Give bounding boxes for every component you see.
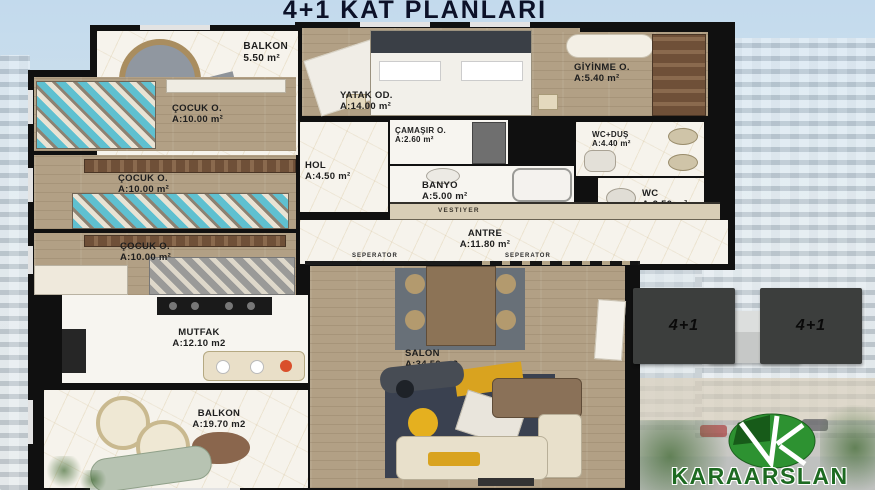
room-name: WC (642, 188, 687, 199)
room-area: A:10.00 m² (118, 184, 169, 195)
room-name: BALKON (164, 408, 274, 419)
window (470, 22, 530, 27)
plate (216, 360, 230, 374)
room-area: A:5.40 m² (574, 73, 630, 84)
room-giyinme: GİYİNME O. A:5.40 m² (562, 32, 708, 116)
seperator-rule-dashed (470, 261, 638, 265)
nightstand (538, 94, 558, 110)
wardrobe (652, 34, 706, 116)
room-name: ANTRE (440, 228, 530, 239)
burner (191, 302, 199, 310)
brown-sofa (492, 378, 582, 418)
keyplan-left-label: 4+1 (669, 317, 699, 335)
room-name: HOL (305, 160, 350, 171)
room-name: BALKON (243, 41, 288, 53)
logo-wordmark: KARAARSLAN (645, 463, 875, 490)
dining-chair (405, 274, 425, 294)
console-table (594, 299, 626, 361)
plant (46, 456, 82, 488)
toilet (584, 150, 616, 172)
room-hol: HOL A:4.50 m² (300, 122, 388, 212)
room-name: YATAK OD. (340, 90, 393, 101)
room-area: A:10.00 m² (120, 252, 171, 263)
room-name: MUTFAK (154, 327, 244, 338)
pillow (461, 61, 523, 81)
kitchen-counter (62, 329, 86, 373)
room-name: ÇOCUK O. (118, 173, 169, 184)
window (28, 246, 33, 274)
room-cocuk-1: ÇOCUK O. A:10.00 m² (34, 77, 296, 151)
window (360, 22, 430, 27)
bathtub (512, 168, 572, 202)
background-buildings-left (0, 55, 30, 490)
keyplan: 4+1 4+1 (630, 283, 865, 368)
plant (78, 470, 108, 490)
room-balkon-bottom: BALKON A:19.70 m2 (44, 390, 308, 488)
room-area: A:19.70 m2 (164, 419, 274, 430)
room-antre: ANTRE A:11.80 m² SEPERATOR SEPERATOR (300, 220, 728, 264)
room-area: 5.50 m² (243, 53, 288, 65)
tv-bench (478, 478, 534, 486)
room-area: A:4.50 m² (305, 171, 350, 182)
wardrobe (84, 235, 286, 247)
dining-chair (405, 310, 425, 330)
dining-table (426, 266, 496, 346)
bed-blanket (371, 31, 531, 53)
burner (169, 302, 177, 310)
dining-chair (496, 274, 516, 294)
vestiyer-label: VESTIYER (438, 207, 480, 214)
stove-counter (157, 297, 272, 315)
room-name: ÇAMAŞIR O. (395, 126, 446, 135)
sink (668, 154, 698, 171)
dining-island (203, 351, 305, 381)
karaarslan-logo-icon (726, 412, 818, 470)
room-mutfak: MUTFAK A:12.10 m2 (62, 295, 308, 383)
washer-dryer (472, 122, 506, 164)
room-area: A:5.00 m² (422, 191, 467, 202)
wardrobe (84, 159, 296, 173)
seperator-label-right: SEPERATOR (505, 253, 551, 259)
plate (250, 360, 264, 374)
room-cocuk-2: ÇOCUK O. A:10.00 m² (34, 155, 296, 229)
room-name: SALON (405, 348, 458, 359)
room-name: ÇOCUK O. (172, 103, 223, 114)
keyplan-left-unit: 4+1 (633, 288, 735, 364)
yellow-cushion (428, 452, 480, 466)
room-name: WC+DUŞ (592, 130, 631, 139)
vestiyer-cabinet: VESTIYER (390, 202, 720, 220)
sink (668, 128, 698, 145)
room-name: ÇOCUK O. (120, 241, 171, 252)
keyplan-right-unit: 4+1 (760, 288, 862, 364)
window (28, 400, 33, 444)
room-area: A:11.80 m² (440, 239, 530, 250)
dining-chair (496, 310, 516, 330)
desk (34, 265, 128, 295)
window (28, 90, 33, 124)
room-wc-dus: WC+DUŞ A:4.40 m² (576, 122, 704, 176)
seperator-label-left: SEPERATOR (352, 253, 398, 259)
window (140, 25, 210, 30)
room-area: A:4.40 m² (592, 139, 631, 148)
vanity-desk (566, 34, 654, 58)
room-camasir: ÇAMAŞIR O. A:2.60 m² (390, 120, 508, 164)
room-area: A:12.10 m2 (154, 338, 244, 349)
keyplan-right-label: 4+1 (796, 317, 826, 335)
burner (247, 302, 255, 310)
bed (72, 193, 289, 229)
yellow-pouf (408, 408, 438, 438)
room-area: A:2.60 m² (395, 135, 446, 144)
burner (225, 302, 233, 310)
room-area: A:14.00 m² (340, 101, 393, 112)
pillow (379, 61, 441, 81)
room-name: BANYO (422, 180, 467, 191)
room-name: GİYİNME O. (574, 62, 630, 73)
window (28, 168, 33, 202)
double-bed (370, 30, 532, 116)
room-yatak-odasi: YATAK OD. A:14.00 m² (302, 28, 580, 116)
side-table (396, 380, 414, 398)
room-cocuk-3: ÇOCUK O. A:10.00 m² (34, 233, 296, 295)
room-area: A:10.00 m² (172, 114, 223, 125)
room-banyo: BANYO A:5.00 m² (390, 166, 574, 202)
desk (166, 79, 286, 93)
room-salon: SALON A:34.50 m2 (310, 266, 625, 488)
flyer-page: 4+1 KAT PLANLARI BALKON 5.50 m² ÇOCUK O.… (0, 0, 875, 490)
bed (36, 81, 156, 149)
bowl (280, 360, 292, 372)
